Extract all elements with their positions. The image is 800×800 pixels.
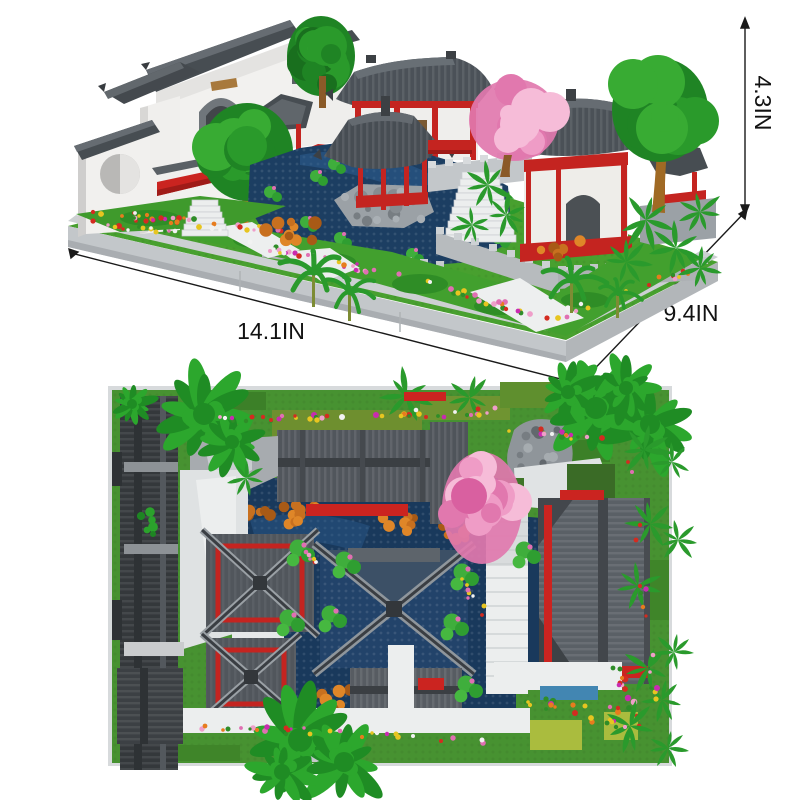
svg-text:4.3IN: 4.3IN	[750, 76, 776, 131]
svg-text:14.1IN: 14.1IN	[237, 318, 305, 344]
